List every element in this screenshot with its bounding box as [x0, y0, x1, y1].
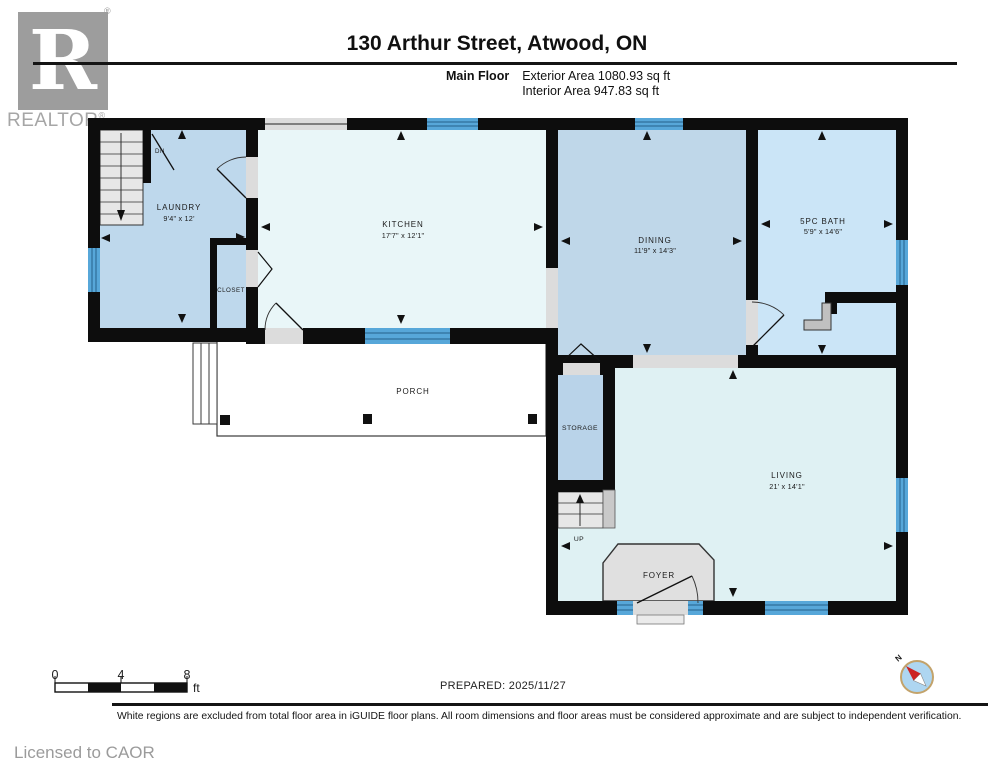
foyer-label: FOYER — [643, 571, 675, 580]
porch-label: PORCH — [396, 387, 429, 396]
kitchen-dims: 17'7" x 12'1" — [382, 231, 425, 240]
compass: N — [894, 653, 933, 693]
laundry-label: LAUNDRY — [157, 203, 201, 212]
dining-window — [635, 118, 683, 130]
compass-north-label: N — [894, 653, 904, 664]
bath-label: 5PC BATH — [800, 217, 846, 226]
kitchen-bottom-window — [365, 328, 450, 344]
licensed-to: Licensed to CAOR — [14, 743, 155, 763]
footer-rule — [112, 703, 988, 706]
storage-label: STORAGE — [562, 425, 598, 432]
prepared-date: PREPARED: 2025/11/27 — [353, 680, 653, 692]
kitchen-room — [258, 130, 546, 328]
laundry-dims: 9'4" x 12' — [163, 214, 195, 223]
dining-label: DINING — [638, 236, 671, 245]
door-sidelight-left — [617, 601, 633, 615]
scale-unit: ft — [193, 681, 200, 695]
floor-plan-page: R ® REALTOR® 130 Arthur Street, Atwood, … — [0, 0, 994, 768]
living-bottom-window — [765, 601, 828, 615]
stairs-up-label: UP — [574, 536, 584, 543]
dining-dims: 11'9" x 14'3" — [634, 246, 676, 255]
kitchen-label: KITCHEN — [382, 220, 423, 229]
stairs-down-label: DN — [155, 148, 165, 155]
living-dims: 21' x 14'1" — [769, 482, 805, 491]
porch-steps — [193, 343, 217, 424]
living-side-window — [896, 478, 908, 532]
porch: PORCH — [193, 336, 546, 436]
kitchen-top-window — [427, 118, 478, 130]
living-label: LIVING — [771, 471, 803, 480]
scale-bar: 0 4 8 ft — [52, 668, 201, 695]
bath-window — [896, 240, 908, 285]
laundry-window — [88, 248, 100, 292]
floor-plan-svg: PORCH DN UP FOYER — [0, 0, 994, 768]
door-sidelight-right — [688, 601, 703, 615]
bath-dims: 5'9" x 14'6" — [804, 227, 843, 236]
disclaimer-text: White regions are excluded from total fl… — [117, 711, 977, 722]
closet-label: CLOSET — [217, 287, 245, 294]
